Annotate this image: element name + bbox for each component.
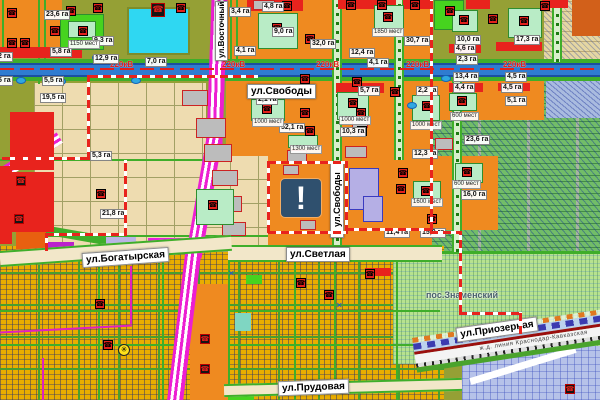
capacity-label: 1000 мест <box>252 118 284 127</box>
zone-border-magenta <box>130 266 132 324</box>
capacity-label: 1000 мест <box>410 121 442 130</box>
area-label: 13,4 га <box>453 72 479 82</box>
boundary-dash <box>459 231 462 313</box>
facility-icon: ☎ <box>300 74 310 84</box>
capacity-label: 1850 мест <box>372 28 404 37</box>
building-block <box>182 90 208 106</box>
facility-icon: ☎ <box>200 364 210 374</box>
red-strip <box>466 0 490 9</box>
area-label: 5,7 га <box>358 86 380 96</box>
pond <box>407 102 417 109</box>
area-label: 17,3 га <box>514 35 540 45</box>
area-label: 16,0 га <box>461 190 487 200</box>
facility-icon: ☎ <box>14 214 24 224</box>
area-label: 5 га <box>0 76 13 86</box>
facility-icon: ☎ <box>457 96 467 106</box>
facility-icon: ☎ <box>103 340 113 350</box>
city-master-plan-map[interactable]: 220кВ 220кВ 220кВ 220кВ 220кВ <box>0 0 600 400</box>
pond <box>16 77 26 84</box>
facility-icon: ☎ <box>305 126 315 136</box>
facility-icon: ☎ <box>324 290 334 300</box>
facility-icon-circle: ✳ <box>118 344 130 356</box>
teal-block <box>235 313 251 331</box>
red-block <box>10 112 54 170</box>
pond <box>131 77 141 84</box>
area-label: 12,3 га <box>412 149 438 159</box>
facility-icon: ☎ <box>50 26 60 36</box>
facility-icon: ☎ <box>540 1 550 11</box>
boundary-dash <box>459 312 521 315</box>
capacity-label: 1600 мест <box>411 198 443 207</box>
area-label: 4,1 га <box>234 46 256 56</box>
alert-marker[interactable]: ! <box>281 179 321 217</box>
area-label: 5,1 га <box>505 96 527 106</box>
area-label: 4,5 га <box>501 83 523 93</box>
street-line <box>162 252 164 400</box>
area-label: 7,0 га <box>145 57 167 67</box>
boundary-dash <box>90 75 258 78</box>
building-block <box>212 170 238 186</box>
boundary-dash <box>267 161 270 233</box>
settlement-label: пос.Знаменский <box>426 290 498 300</box>
street-label-vostochny-obkhod: ул.Восточный Обход <box>215 1 228 61</box>
power-line-label: 220кВ <box>222 60 245 69</box>
boundary-dash <box>519 312 522 334</box>
area-label: 19,5 га <box>40 93 66 103</box>
zone-border-magenta <box>42 358 44 400</box>
facility-icon: ☎ <box>346 0 356 10</box>
facility-icon: ☎ <box>300 108 310 118</box>
facility-icon: ☎ <box>410 0 420 10</box>
facility-icon: ☎ <box>398 168 408 178</box>
boundary-dash <box>430 0 433 230</box>
power-line-label: 220кВ <box>316 60 339 69</box>
area-label: 12,9 га <box>93 54 119 64</box>
area-label: 12,4 га <box>349 48 375 58</box>
street-line <box>334 262 336 388</box>
facility-icon: ☎ <box>396 184 406 194</box>
building-block <box>300 220 316 230</box>
facility-icon: ☎ <box>16 176 26 186</box>
area-label: 4,8 га <box>262 2 284 12</box>
capacity-label: 600 мест <box>450 112 479 121</box>
street-trees-3 <box>552 0 562 62</box>
facility-icon: ☎ <box>462 167 472 177</box>
boundary-dash <box>345 161 348 233</box>
facility-icon: ☎ <box>78 26 88 36</box>
facility-icon: ☎ <box>262 104 272 114</box>
utility-mark: ✕ <box>336 302 343 310</box>
red-block <box>0 166 12 244</box>
street-label-prudovaya: ул.Прудовая <box>278 379 349 396</box>
area-label: 23,6 га <box>44 10 70 20</box>
building-block <box>204 144 232 162</box>
area-label: 21,8 га <box>100 209 126 219</box>
boundary-dash <box>2 157 88 160</box>
street-line <box>0 344 462 346</box>
area-label: 9,0 га <box>272 27 294 37</box>
pond <box>441 75 451 82</box>
area-label: 2,3 га <box>456 55 478 65</box>
area-label: 5,3 га <box>90 151 112 161</box>
building-block <box>283 165 299 175</box>
area-label: 10,3 га <box>340 127 366 137</box>
area-label: 30,7 га <box>404 36 430 46</box>
boundary-dash <box>124 160 127 236</box>
street-label-svetlaya: ул.Светлая <box>286 247 350 262</box>
area-label: 2,2 га <box>416 86 438 96</box>
area-label: 4,4 га <box>453 83 475 93</box>
area-label: 5,5 га <box>42 76 64 86</box>
area-label: 3,4 га <box>229 7 251 17</box>
facility-icon: ☎ <box>365 269 375 279</box>
facility-icon: ☎ <box>377 0 387 10</box>
area-label: 2 га <box>0 52 13 62</box>
public-building-footprint <box>363 196 383 222</box>
street-line <box>396 252 398 400</box>
facility-icon: ☎ <box>93 3 103 13</box>
area-label: 4,6 га <box>454 44 476 54</box>
utility-mark: ✕ <box>228 270 235 278</box>
capacity-label: 1000 мест <box>339 116 371 125</box>
facility-icon: ☎ <box>96 189 106 199</box>
facility-icon: ☎ <box>296 278 306 288</box>
facility-icon: ☎ <box>7 8 17 18</box>
boundary-dash <box>268 161 348 164</box>
facility-icon: ☎ <box>519 16 529 26</box>
building-block <box>345 146 367 158</box>
facility-icon: ☎ <box>208 200 218 210</box>
facility-icon: ☎ <box>348 98 358 108</box>
boundary-dash <box>87 75 90 160</box>
capacity-label: 1300 мест <box>290 145 322 154</box>
green-block <box>246 275 262 284</box>
boundary-dash <box>45 233 48 251</box>
area-label: 4,5 га <box>505 72 527 82</box>
facility-icon: ☎ <box>459 15 469 25</box>
capacity-label: 1150 мест <box>68 40 100 49</box>
facility-icon: ☎ <box>20 38 30 48</box>
facility-icon: ☎ <box>488 14 498 24</box>
area-label: 32,0 га <box>310 39 336 49</box>
power-line-label: 220кВ <box>503 60 526 69</box>
facility-icon: ☎ <box>390 87 400 97</box>
area-label: 4,1 га <box>367 58 389 68</box>
boundary-dash <box>46 233 126 236</box>
boundary-dash <box>346 228 432 231</box>
facility-icon: ☎ <box>565 384 575 394</box>
capacity-label: 600 мест <box>452 180 481 189</box>
facility-icon: ☎ <box>7 38 17 48</box>
facility-icon: ☎ <box>200 334 210 344</box>
facility-icon: ☎ <box>176 3 186 13</box>
facility-icon: ☎ <box>151 3 165 17</box>
street-label-svobody: ул.Свободы <box>247 84 316 99</box>
boundary-dash <box>268 231 348 234</box>
facility-icon: ☎ <box>95 299 105 309</box>
boundary-dash <box>430 231 462 234</box>
building-block <box>196 118 226 138</box>
facility-icon: ☎ <box>383 12 393 22</box>
facility-icon: ☎ <box>445 6 455 16</box>
street-label-svobody-vertical: ул.Свободы <box>330 162 344 238</box>
area-label: 23,6 га <box>464 135 490 145</box>
power-line-label: 220кВ <box>406 60 429 69</box>
